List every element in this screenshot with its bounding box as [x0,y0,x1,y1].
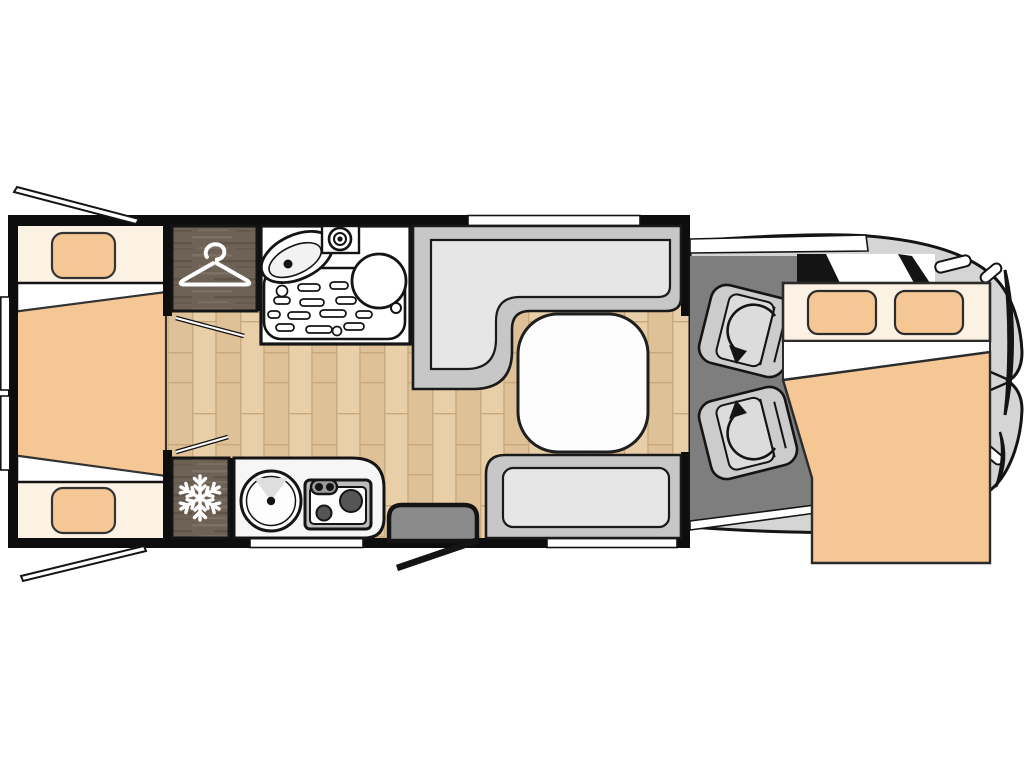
cab-bed-pillow-right [895,291,963,334]
cab-bed-blanket [783,352,990,563]
hob [305,480,371,529]
window-dinette-bottom [547,539,677,548]
open-window-flap-bottom: Opened rear window (passenger side) [21,546,146,581]
floorplan-page: Motorhome floor plan, top view Rear twin… [0,0,1024,768]
rear-bedroom: Rear twin single beds with centre infill… [12,225,166,539]
fridge: Refrigerator [172,458,229,538]
drop-down-bed: Pull-down double bed over cab [783,283,990,563]
wardrobe: Wardrobe [172,226,257,311]
basin-tap [284,260,293,269]
entry-step [389,505,477,541]
toilet [352,254,406,308]
window-kitchen [250,539,363,548]
shower-head-icon [322,226,359,253]
toilet-flush [391,303,401,313]
entry: Entrance step and open entry door [389,505,479,568]
side-bench-cushion [503,468,669,527]
cab-bed-pillow-left [808,291,876,334]
bed-blanket [12,292,166,476]
pillow-bottom [52,488,115,533]
bathroom: Bathroom with shower tray, washbasin and… [253,221,410,344]
window-rear-2 [1,396,10,470]
dinette-table: Dinette table [518,314,648,452]
kitchen: Kitchen block with round sink and two-bu… [234,458,384,538]
cab-side-strip-top [690,235,868,253]
window-dinette-top [468,216,640,226]
floorplan-canvas: Motorhome floor plan, top view Rear twin… [0,0,1024,768]
burner-small [317,506,332,521]
sink-tap [267,497,275,505]
pillow-top [52,233,115,278]
window-rear-1 [1,297,10,390]
burner-large [340,490,362,512]
